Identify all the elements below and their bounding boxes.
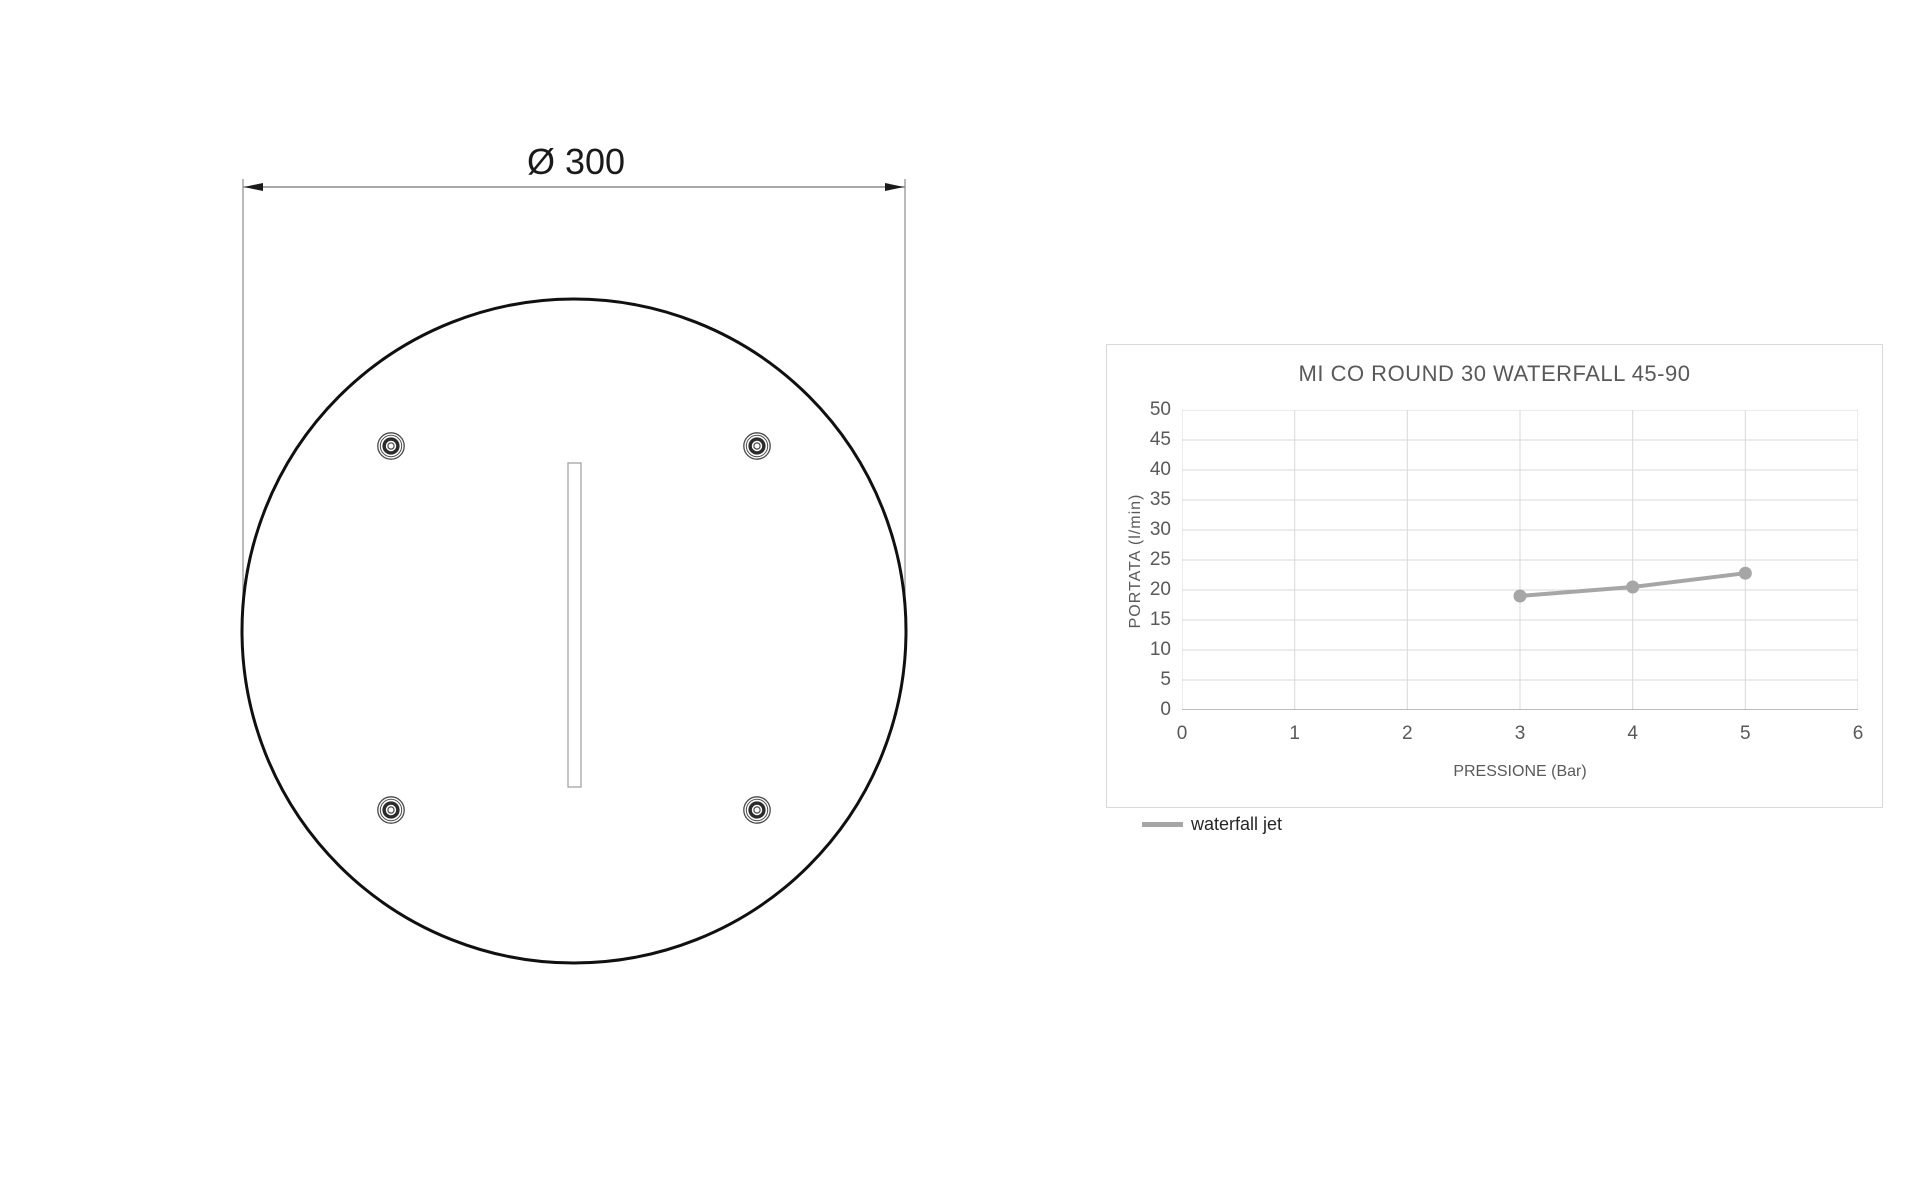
y-tick-label: 45 [1107, 428, 1171, 452]
tick-labels: 051015202530354045500123456 [1107, 345, 1882, 807]
legend-line-swatch [1142, 822, 1183, 827]
y-tick-label: 10 [1107, 638, 1171, 662]
y-tick-label: 30 [1107, 518, 1171, 542]
page: Ø 300 [0, 0, 1920, 1200]
x-tick-label: 5 [1721, 722, 1769, 746]
x-tick-label: 0 [1158, 722, 1206, 746]
y-tick-label: 0 [1107, 698, 1171, 722]
diameter-dimension-label: Ø 300 [527, 141, 625, 182]
y-tick-label: 25 [1107, 548, 1171, 572]
y-tick-label: 5 [1107, 668, 1171, 692]
y-tick-label: 50 [1107, 398, 1171, 422]
x-tick-label: 2 [1383, 722, 1431, 746]
y-tick-label: 35 [1107, 488, 1171, 512]
chart-legend: waterfall jet [1142, 810, 1282, 838]
waterfall-slot [568, 463, 581, 787]
legend-label: waterfall jet [1191, 814, 1282, 835]
chart-panel: MI CO ROUND 30 WATERFALL 45-90 PORTATA (… [1106, 344, 1883, 808]
y-tick-label: 15 [1107, 608, 1171, 632]
dimension-arrow-right-icon [885, 183, 904, 191]
dimension-arrow-left-icon [244, 183, 263, 191]
x-tick-label: 1 [1271, 722, 1319, 746]
y-tick-label: 40 [1107, 458, 1171, 482]
x-tick-label: 4 [1609, 722, 1657, 746]
y-tick-label: 20 [1107, 578, 1171, 602]
technical-drawing: Ø 300 [0, 0, 1000, 1050]
x-tick-label: 6 [1834, 722, 1882, 746]
x-tick-label: 3 [1496, 722, 1544, 746]
